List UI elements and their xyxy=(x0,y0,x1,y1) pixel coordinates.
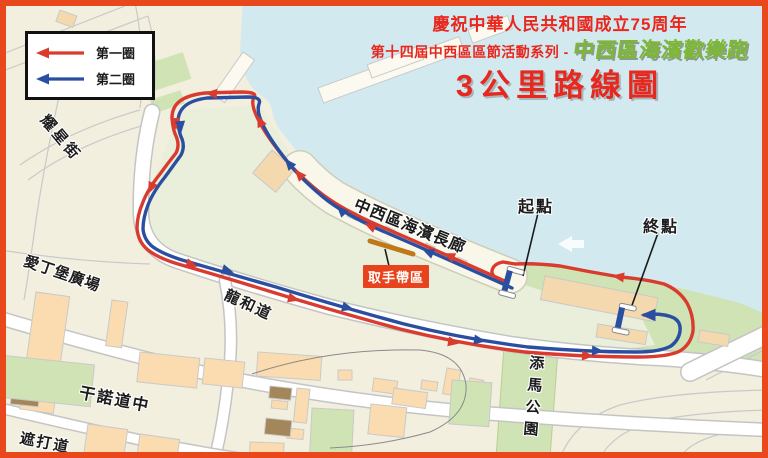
legend-lap1-label: 第一圈 xyxy=(96,43,135,62)
legend-lap2-label: 第二圈 xyxy=(96,69,135,88)
lap2-arrow-icon xyxy=(36,73,88,85)
label-start-point: 起點 xyxy=(518,193,554,217)
title-line1: 慶祝中華人民共和國成立75周年 xyxy=(360,14,760,35)
legend-lap1-row: 第一圈 xyxy=(28,43,152,62)
label-wristband-zone: 取手帶區 xyxy=(363,265,429,288)
title-line3: 3公里路線圖 xyxy=(360,67,760,106)
legend-box: 第一圈 第二圈 xyxy=(25,31,155,100)
title-block: 慶祝中華人民共和國成立75周年 第十四屆中西區區節活動系列 - 中西區海濱歡樂跑… xyxy=(360,14,760,105)
lap1-arrow-icon xyxy=(36,47,88,59)
title-line2-highlight: 中西區海濱歡樂跑 xyxy=(571,38,751,64)
legend-lap2-row: 第二圈 xyxy=(28,69,152,88)
title-line2-prefix: 第十四屆中西區區節活動系列 - xyxy=(371,44,573,60)
title-line2: 第十四屆中西區區節活動系列 - 中西區海濱歡樂跑 xyxy=(360,38,760,64)
label-finish-point: 終點 xyxy=(643,213,679,237)
route-map-poster: 第一圈 第二圈 慶祝中華人民共和國成立75周年 第十四屆中西區區節活動系列 - … xyxy=(0,0,768,458)
